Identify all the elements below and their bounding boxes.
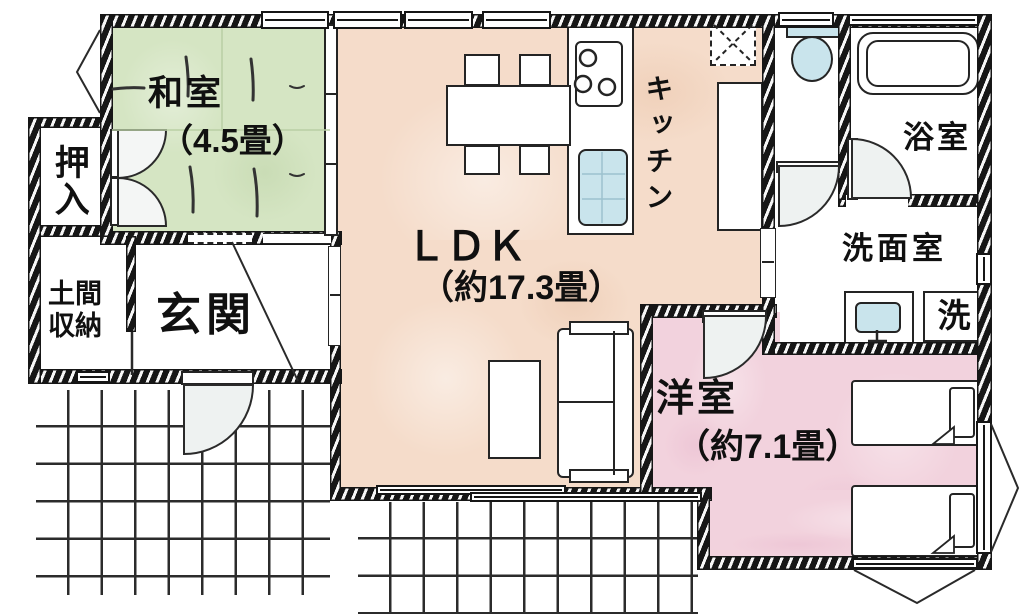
wall	[762, 14, 775, 232]
room-label-ldk: ＬＤＫ	[406, 226, 526, 268]
room-size-washitsu: （4.5畳）	[160, 124, 305, 159]
room-label-oshiire: 押入	[50, 144, 87, 218]
window	[404, 11, 473, 29]
bath-window	[848, 14, 979, 26]
washbasin-icon	[855, 302, 901, 333]
bathtub-rim	[866, 40, 970, 87]
room-size-ldk: （約17.3畳）	[420, 271, 622, 307]
wall	[762, 342, 992, 355]
room-size-yoshitsu: （約7.1畳）	[676, 430, 859, 466]
fusuma-opening	[188, 233, 252, 244]
porch-tiles	[36, 390, 330, 595]
sofa-armrest	[569, 469, 629, 483]
chair	[519, 54, 551, 86]
room-label-kitchen: キッチン	[643, 74, 672, 218]
washroom-window	[976, 253, 992, 285]
window	[482, 11, 551, 29]
washitsu-sliding-door	[324, 24, 338, 236]
doma-line2: 収納	[48, 311, 102, 343]
toilet-bowl-icon	[791, 36, 833, 82]
dining-table	[446, 85, 571, 146]
laundry-label: 洗	[938, 299, 971, 334]
genkan-sliding-door	[328, 246, 341, 346]
yoshitsu-bay-window	[976, 421, 992, 554]
chair	[464, 54, 500, 86]
pillow	[949, 387, 975, 438]
room-label-washitsu: 和室	[148, 76, 224, 113]
chair	[519, 145, 550, 175]
toilet-door-leaf	[776, 161, 840, 173]
room-label-bath: 浴室	[903, 122, 971, 155]
sofa-armrest	[569, 321, 629, 335]
washroom-door	[760, 228, 776, 298]
terrace-tiles	[358, 502, 698, 614]
wall	[330, 343, 341, 501]
washing-machine-space: 洗	[923, 291, 985, 342]
cupboard	[717, 82, 763, 231]
oshiire-door-leaf	[110, 177, 123, 226]
room-label-doma: 土間 収納	[48, 279, 102, 343]
room-label-genkan: 玄関	[156, 291, 256, 338]
wall	[640, 304, 653, 502]
kitchen-sink-icon	[578, 149, 628, 226]
pillow	[949, 493, 975, 548]
doma-line1: 土間	[48, 279, 102, 311]
yoshitsu-bottom-window	[852, 558, 978, 569]
toilet-door-arc	[779, 166, 839, 226]
oshiire-door-leaf	[110, 129, 123, 178]
bath-door-leaf	[847, 138, 858, 200]
chair	[464, 145, 500, 175]
ldk-sliding-window	[470, 492, 702, 502]
genkan-small-window	[76, 371, 110, 383]
hall-opening	[263, 233, 331, 244]
room-label-yoshitsu: 洋室	[656, 380, 738, 420]
entrance-door-leaf	[181, 371, 254, 385]
yoshitsu-door-leaf	[702, 310, 767, 323]
bay-marker	[854, 570, 975, 603]
wall	[762, 295, 775, 355]
window	[261, 11, 329, 29]
toilet-window	[778, 12, 834, 27]
room-label-washroom: 洗面室	[842, 233, 947, 266]
floor-plan: 洗	[0, 0, 1024, 614]
bay-marker	[77, 30, 100, 113]
wall	[28, 117, 41, 384]
wall	[126, 236, 136, 332]
tv-board	[488, 360, 541, 459]
stove-icon	[575, 41, 623, 107]
bay-marker	[991, 424, 1018, 552]
window	[333, 11, 402, 29]
sofa	[557, 328, 634, 478]
